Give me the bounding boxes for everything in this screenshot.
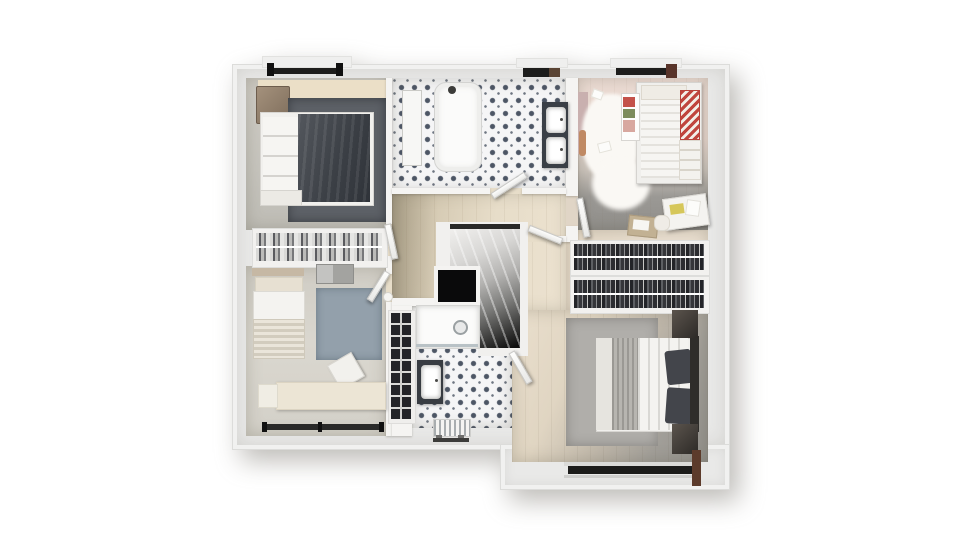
- stairwell-void: [438, 270, 476, 302]
- dressing-rail-1-rail: [574, 256, 704, 258]
- single-bed-mattress: [253, 291, 305, 321]
- toy-pink: [623, 120, 635, 132]
- pillow: [255, 277, 303, 292]
- paper-sheet: [685, 199, 701, 217]
- sink: [421, 365, 441, 399]
- sink: [546, 107, 566, 133]
- partition-wall: [522, 188, 566, 194]
- bath-mat: [402, 90, 422, 166]
- window-frame-cap: [267, 63, 274, 76]
- toy-red: [623, 97, 635, 107]
- window-frame-cap: [318, 422, 322, 432]
- sink: [546, 137, 566, 164]
- bathtub: [434, 82, 482, 172]
- shower-room-window: [433, 438, 469, 442]
- bathtub-faucet: [448, 86, 456, 94]
- partition-wall: [392, 188, 490, 194]
- yellow-book: [669, 203, 684, 215]
- single-bed-headboard: [252, 268, 304, 276]
- bed-pillows: [263, 117, 299, 199]
- pillow-stack: [679, 140, 701, 180]
- faucet-dot: [435, 379, 438, 382]
- partition-wall: [386, 78, 392, 224]
- nightstand: [672, 310, 698, 338]
- corner-wood-post: [692, 450, 701, 486]
- vase: [383, 292, 393, 302]
- orange-accent: [579, 130, 586, 156]
- bed-duvet: [298, 114, 370, 202]
- shower-drain: [453, 320, 468, 335]
- staircase-frame: [478, 348, 528, 356]
- floor-plan: [0, 0, 960, 540]
- window-top-left: [270, 68, 340, 74]
- window-frame-cap: [262, 422, 267, 432]
- single-bed-blanket: [253, 319, 305, 359]
- tray-paper: [633, 219, 650, 231]
- window-wood-lintel: [549, 68, 560, 77]
- striped-duvet-roll: [680, 90, 700, 140]
- pouf: [654, 215, 670, 231]
- window-top-center: [523, 68, 549, 77]
- toy-green: [623, 109, 635, 118]
- faucet-dot: [560, 148, 563, 151]
- window-frame-cap: [379, 422, 384, 432]
- faucet-dot: [560, 118, 563, 121]
- window-frame-cap: [336, 63, 343, 76]
- shower-tray: [416, 305, 480, 349]
- headboard: [690, 336, 699, 432]
- dark-pillow: [665, 387, 693, 425]
- bench: [260, 190, 302, 206]
- master-bedroom-window: [568, 466, 692, 474]
- bookshelf-books: [391, 313, 411, 419]
- hall-wardrobe-rail: [256, 246, 382, 248]
- dresser: [316, 264, 354, 284]
- bed-throw: [612, 338, 638, 430]
- desk: [276, 382, 386, 410]
- staircase-frame: [520, 222, 528, 356]
- side-cabinet: [258, 384, 278, 408]
- bedroom-bottom-left-window: [262, 424, 384, 430]
- dressing-rail-2-rail: [574, 293, 704, 295]
- shower-glass-panel: [416, 344, 478, 347]
- window-wood-lintel: [666, 64, 677, 79]
- window-sill: [564, 475, 696, 478]
- bed-fold: [596, 338, 613, 430]
- window-recess-top-center: [516, 58, 568, 68]
- window-top-right: [616, 68, 668, 75]
